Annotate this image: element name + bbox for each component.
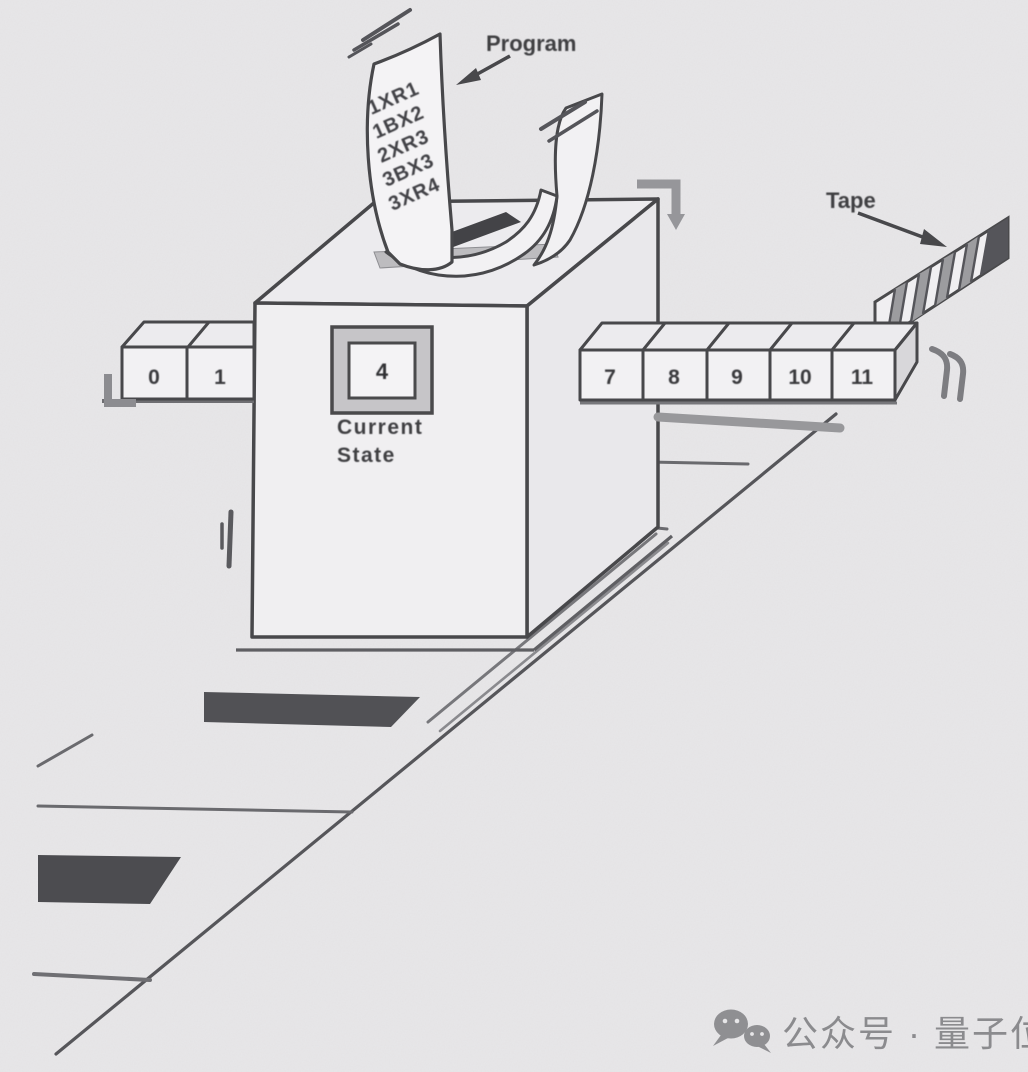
current-state-label-line2: State: [337, 444, 396, 467]
platform-line: [649, 462, 748, 464]
machine-shadow: [204, 692, 420, 727]
scanned-turing-machine-figure: 1XR1 1BX2 2XR3 3BX3 3XR4 Program: [0, 0, 1028, 1072]
left-cells-top-face: [122, 322, 254, 347]
current-state-label-line1: Current: [337, 416, 423, 439]
program-label: Program: [486, 31, 576, 56]
tape-label: Tape: [826, 188, 876, 213]
tape-cell-value: 8: [668, 366, 680, 389]
tape-cell-value: 10: [788, 366, 811, 389]
turing-machine-diagram: 1XR1 1BX2 2XR3 3BX3 3XR4 Program: [0, 0, 1028, 1072]
current-state-value: 4: [376, 359, 389, 384]
tape-cell-value: 11: [851, 366, 874, 389]
watermark-text: 公众号 · 量子位: [782, 1013, 1028, 1054]
tape-cell-value: 7: [604, 366, 616, 389]
right-cells-top-face: [580, 323, 917, 350]
tape-cell-value: 0: [148, 366, 160, 389]
tape-cell-value: 9: [731, 366, 743, 389]
tape-cell-value: 1: [214, 366, 226, 389]
